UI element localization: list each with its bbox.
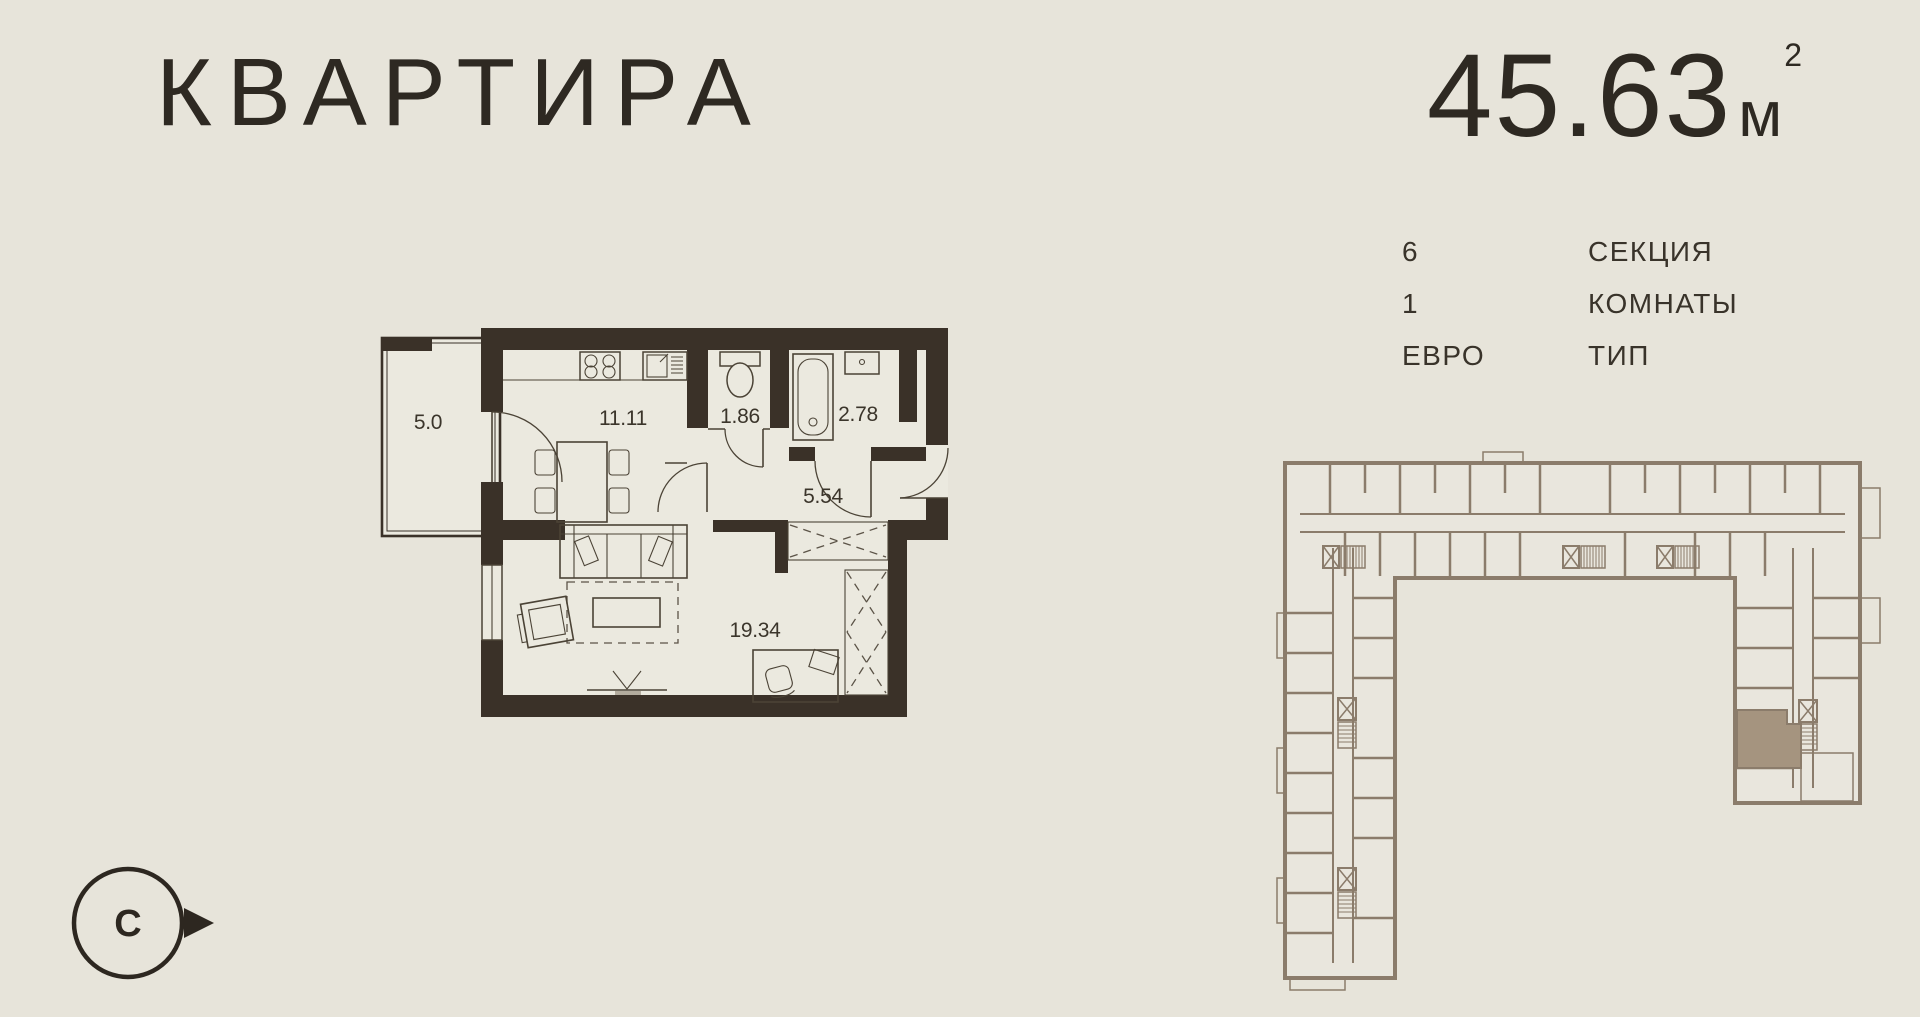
total-area-superscript: 2 — [1784, 37, 1802, 73]
stove-icon — [580, 352, 620, 380]
compass-north-indicator: С — [66, 860, 241, 990]
apartment-floor-plan: 5.0 11.11 1.86 2.78 5.54 19.34 — [375, 322, 950, 722]
detail-row-section: 6 СЕКЦИЯ — [1402, 236, 1822, 288]
bathroom-area-label: 2.78 — [838, 403, 878, 426]
wc-area-label: 1.86 — [720, 405, 760, 428]
living-room-window — [482, 565, 502, 640]
washbasin-icon — [845, 352, 879, 374]
type-label: ТИП — [1588, 340, 1650, 372]
detail-row-rooms: 1 КОМНАТЫ — [1402, 288, 1822, 340]
page-title: КВАРТИРА — [156, 38, 766, 148]
building-overview-plan — [1275, 448, 1915, 993]
living-room-floor — [481, 520, 907, 717]
balcony-area-label: 5.0 — [414, 411, 442, 434]
compass-north-letter: С — [114, 903, 141, 945]
detail-row-type: ЕВРО ТИП — [1402, 340, 1822, 392]
hallway-area-label: 5.54 — [803, 485, 843, 508]
section-value: 6 — [1402, 236, 1419, 268]
type-value: ЕВРО — [1402, 340, 1485, 372]
rooms-label: КОМНАТЫ — [1588, 288, 1738, 320]
kitchen-sink-icon — [643, 352, 687, 380]
section-label: СЕКЦИЯ — [1588, 236, 1713, 268]
living-room-area-label: 19.34 — [729, 619, 781, 642]
total-area: 45.63м2 — [1427, 28, 1802, 164]
kitchen-area-label: 11.11 — [599, 407, 647, 430]
balcony-wall-stub — [382, 338, 432, 351]
apartment-card-page: КВАРТИРА 45.63м2 6 СЕКЦИЯ 1 КОМНАТЫ ЕВРО… — [0, 0, 1920, 1017]
rooms-value: 1 — [1402, 288, 1419, 320]
total-area-value: 45.63 — [1427, 30, 1732, 162]
total-area-unit: м — [1738, 78, 1782, 150]
apartment-details: 6 СЕКЦИЯ 1 КОМНАТЫ ЕВРО ТИП — [1402, 236, 1822, 392]
compass-arrow-icon — [184, 908, 214, 938]
